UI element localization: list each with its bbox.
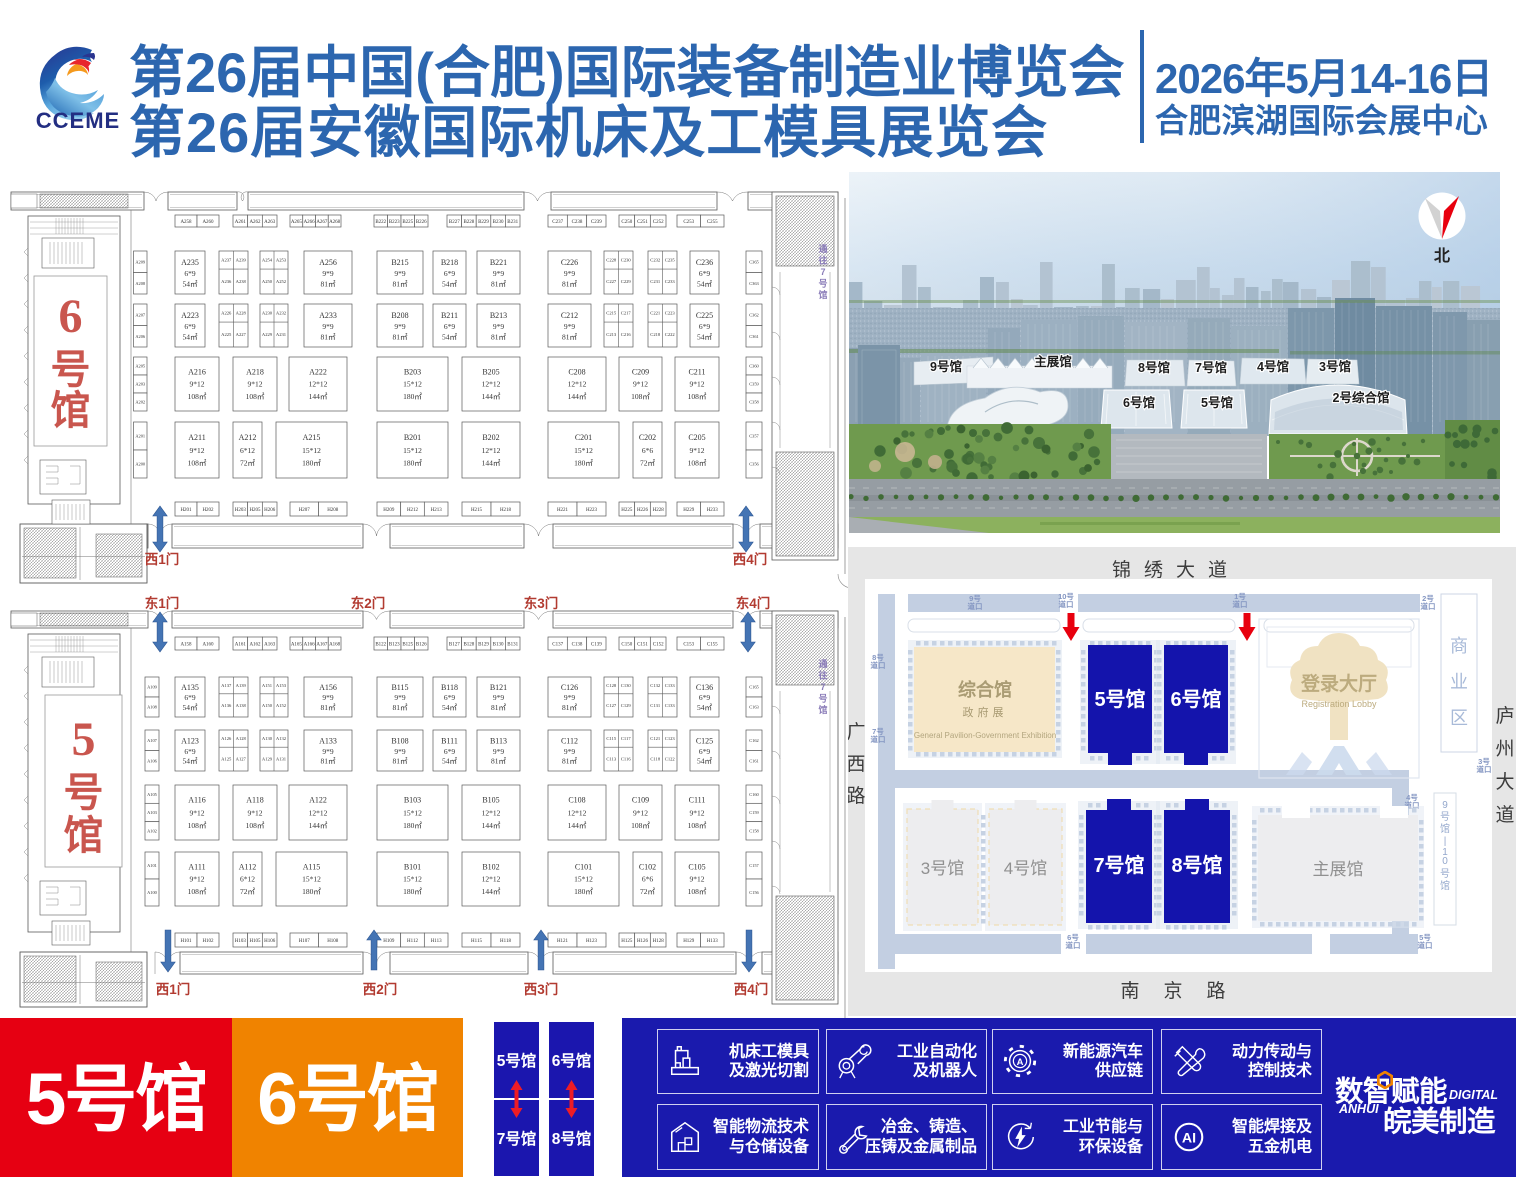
svg-text:B121: B121 xyxy=(490,683,507,692)
svg-text:C115: C115 xyxy=(606,736,616,741)
svg-text:144㎡: 144㎡ xyxy=(482,459,501,468)
svg-text:2号综合馆: 2号综合馆 xyxy=(1333,390,1390,405)
svg-text:B215: B215 xyxy=(391,258,408,267)
svg-text:北: 北 xyxy=(1434,247,1450,265)
svg-text:A209: A209 xyxy=(135,259,146,264)
svg-text:180㎡: 180㎡ xyxy=(403,459,422,468)
svg-text:H129: H129 xyxy=(683,939,695,944)
svg-text:登录大厅: 登录大厅 xyxy=(1300,672,1377,695)
svg-text:西: 西 xyxy=(848,754,866,775)
svg-text:A111: A111 xyxy=(188,862,205,871)
svg-text:馆: 馆 xyxy=(64,813,104,858)
svg-text:81㎡: 81㎡ xyxy=(491,332,507,341)
svg-text:C250: C250 xyxy=(621,220,632,225)
svg-text:5号馆: 5号馆 xyxy=(1201,395,1233,410)
svg-text:H113: H113 xyxy=(431,939,442,944)
svg-text:C236: C236 xyxy=(696,258,713,267)
svg-text:东1门: 东1门 xyxy=(145,595,180,611)
svg-text:9: 9 xyxy=(1442,800,1448,811)
svg-text:81㎡: 81㎡ xyxy=(491,703,507,712)
svg-text:B221: B221 xyxy=(490,258,507,267)
svg-text:9*12: 9*12 xyxy=(248,380,263,389)
svg-text:H118: H118 xyxy=(500,939,511,944)
svg-text:H221: H221 xyxy=(557,508,569,513)
svg-text:B115: B115 xyxy=(391,683,408,692)
svg-text:A202: A202 xyxy=(135,400,145,405)
svg-text:H218: H218 xyxy=(500,508,512,513)
svg-text:C108: C108 xyxy=(568,796,585,805)
svg-text:H112: H112 xyxy=(407,939,418,944)
svg-text:馆: 馆 xyxy=(818,289,827,300)
svg-text:B101: B101 xyxy=(404,862,421,871)
svg-text:180㎡: 180㎡ xyxy=(403,392,422,401)
svg-text:5号馆: 5号馆 xyxy=(1094,687,1145,711)
svg-text:B211: B211 xyxy=(441,311,458,320)
svg-text:C251: C251 xyxy=(637,220,648,225)
svg-text:A250: A250 xyxy=(262,279,273,284)
svg-text:108㎡: 108㎡ xyxy=(188,459,207,468)
svg-text:B222: B222 xyxy=(375,220,386,225)
svg-text:15*12: 15*12 xyxy=(403,446,422,455)
svg-text:6*9: 6*9 xyxy=(699,747,711,756)
svg-text:A266: A266 xyxy=(304,220,316,225)
svg-text:A268: A268 xyxy=(329,220,341,225)
svg-text:9*12: 9*12 xyxy=(633,380,648,389)
svg-text:A167: A167 xyxy=(316,642,328,647)
svg-text:A260: A260 xyxy=(202,220,214,225)
svg-text:B102: B102 xyxy=(482,862,499,871)
svg-text:A100: A100 xyxy=(147,890,158,895)
svg-text:道口: 道口 xyxy=(1477,764,1492,774)
svg-text:A237: A237 xyxy=(221,258,232,263)
svg-text:区: 区 xyxy=(1450,708,1468,728)
svg-text:A108: A108 xyxy=(147,705,158,710)
svg-text:144㎡: 144㎡ xyxy=(482,392,501,401)
svg-text:广: 广 xyxy=(848,721,866,743)
svg-text:81㎡: 81㎡ xyxy=(393,703,409,712)
svg-text:6*9: 6*9 xyxy=(184,747,196,756)
svg-text:54㎡: 54㎡ xyxy=(697,279,713,288)
svg-text:12*12: 12*12 xyxy=(482,808,501,817)
svg-text:180㎡: 180㎡ xyxy=(302,459,321,468)
svg-text:72㎡: 72㎡ xyxy=(640,459,656,468)
svg-text:C227: C227 xyxy=(606,279,617,284)
svg-text:B126: B126 xyxy=(416,642,427,647)
svg-text:C202: C202 xyxy=(639,433,656,442)
svg-text:C225: C225 xyxy=(696,311,713,320)
svg-text:6*9: 6*9 xyxy=(184,693,196,702)
svg-text:180㎡: 180㎡ xyxy=(574,459,593,468)
svg-text:A267: A267 xyxy=(316,220,328,225)
svg-text:C152: C152 xyxy=(653,642,664,647)
svg-text:B225: B225 xyxy=(402,220,413,225)
svg-text:A227: A227 xyxy=(236,332,247,337)
svg-text:108㎡: 108㎡ xyxy=(688,392,707,401)
svg-text:B227: B227 xyxy=(449,220,460,225)
svg-text:B131: B131 xyxy=(507,642,518,647)
svg-text:C113: C113 xyxy=(606,757,616,762)
svg-text:H123: H123 xyxy=(586,939,598,944)
svg-text:A: A xyxy=(1017,1057,1024,1068)
svg-text:H205: H205 xyxy=(249,508,261,513)
svg-text:A133: A133 xyxy=(319,737,337,746)
svg-text:A254: A254 xyxy=(262,258,273,263)
svg-text:C239: C239 xyxy=(591,220,602,225)
svg-text:H213: H213 xyxy=(431,508,443,513)
svg-text:A132: A132 xyxy=(276,736,287,741)
svg-text:A103: A103 xyxy=(147,810,158,815)
svg-text:南京路: 南京路 xyxy=(1120,980,1249,1002)
svg-text:A158: A158 xyxy=(180,642,192,647)
svg-text:81㎡: 81㎡ xyxy=(562,703,578,712)
svg-text:西1门: 西1门 xyxy=(156,981,191,997)
svg-text:B229: B229 xyxy=(478,220,489,225)
svg-text:C235: C235 xyxy=(665,258,676,263)
svg-text:81㎡: 81㎡ xyxy=(393,279,409,288)
svg-text:A135: A135 xyxy=(181,683,199,692)
svg-text:A215: A215 xyxy=(303,433,321,442)
svg-text:C205: C205 xyxy=(688,433,705,442)
svg-text:H212: H212 xyxy=(407,508,419,513)
svg-text:9*12: 9*12 xyxy=(190,380,205,389)
svg-text:A253: A253 xyxy=(276,258,287,263)
svg-text:9*9: 9*9 xyxy=(322,269,334,278)
svg-text:81㎡: 81㎡ xyxy=(321,332,337,341)
svg-text:9*9: 9*9 xyxy=(322,322,334,331)
svg-text:道口: 道口 xyxy=(968,601,983,611)
svg-text:81㎡: 81㎡ xyxy=(393,332,409,341)
svg-text:9*9: 9*9 xyxy=(394,747,406,756)
svg-text:路: 路 xyxy=(848,785,866,807)
svg-text:B213: B213 xyxy=(490,311,507,320)
svg-text:54㎡: 54㎡ xyxy=(697,332,713,341)
svg-text:C217: C217 xyxy=(621,311,632,316)
svg-text:C137: C137 xyxy=(552,642,563,647)
svg-text:81㎡: 81㎡ xyxy=(562,757,578,766)
svg-text:通: 通 xyxy=(818,658,827,669)
svg-text:9*12: 9*12 xyxy=(190,875,205,884)
svg-text:C358: C358 xyxy=(749,400,759,405)
svg-text:号: 号 xyxy=(51,347,91,392)
svg-text:号: 号 xyxy=(818,279,827,289)
svg-text:AI: AI xyxy=(1182,1131,1196,1147)
svg-text:6*9: 6*9 xyxy=(444,747,456,756)
svg-text:B130: B130 xyxy=(493,642,504,647)
svg-text:C230: C230 xyxy=(621,258,632,263)
svg-text:144㎡: 144㎡ xyxy=(309,392,328,401)
svg-text:C221: C221 xyxy=(650,311,661,316)
svg-text:B230: B230 xyxy=(493,220,504,225)
svg-text:A160: A160 xyxy=(202,642,214,647)
svg-text:A206: A206 xyxy=(135,334,146,339)
svg-text:A236: A236 xyxy=(221,279,232,284)
svg-text:号: 号 xyxy=(1440,811,1450,823)
svg-text:12*12: 12*12 xyxy=(309,380,328,389)
svg-text:144㎡: 144㎡ xyxy=(482,821,501,830)
svg-text:9*12: 9*12 xyxy=(690,808,705,817)
svg-text:西2门: 西2门 xyxy=(363,981,398,997)
svg-text:6*9: 6*9 xyxy=(699,693,711,702)
svg-text:C232: C232 xyxy=(650,258,661,263)
svg-text:A109: A109 xyxy=(147,685,158,690)
svg-text:C158: C158 xyxy=(749,829,759,834)
svg-text:C361: C361 xyxy=(749,334,759,339)
svg-text:业: 业 xyxy=(1450,672,1468,692)
svg-text:H101: H101 xyxy=(180,939,192,944)
svg-text:B127: B127 xyxy=(449,642,460,647)
svg-text:A112: A112 xyxy=(239,862,256,871)
svg-text:州: 州 xyxy=(1495,739,1514,760)
svg-text:12*12: 12*12 xyxy=(568,808,587,817)
svg-text:B208: B208 xyxy=(391,311,408,320)
svg-text:A125: A125 xyxy=(221,757,232,762)
svg-text:C112: C112 xyxy=(561,737,578,746)
svg-text:A156: A156 xyxy=(319,683,337,692)
svg-text:道: 道 xyxy=(1495,804,1514,826)
svg-text:H203: H203 xyxy=(235,508,247,513)
svg-text:C218: C218 xyxy=(650,332,661,337)
svg-text:H115: H115 xyxy=(471,939,482,944)
svg-text:B103: B103 xyxy=(404,796,421,805)
svg-text:C359: C359 xyxy=(749,382,759,387)
svg-text:108㎡: 108㎡ xyxy=(246,821,265,830)
svg-text:7号馆: 7号馆 xyxy=(1195,360,1227,375)
svg-text:B125: B125 xyxy=(402,642,413,647)
svg-text:5: 5 xyxy=(72,713,96,766)
svg-text:108㎡: 108㎡ xyxy=(188,392,207,401)
svg-text:H107: H107 xyxy=(299,939,311,944)
svg-text:C126: C126 xyxy=(561,683,578,692)
svg-text:A207: A207 xyxy=(135,312,146,317)
svg-text:12*12: 12*12 xyxy=(309,808,328,817)
svg-text:6*9: 6*9 xyxy=(444,322,456,331)
svg-text:A168: A168 xyxy=(329,642,341,647)
svg-text:H233: H233 xyxy=(707,508,719,513)
svg-text:A238: A238 xyxy=(236,279,247,284)
svg-text:54㎡: 54㎡ xyxy=(183,279,199,288)
svg-text:B111: B111 xyxy=(441,737,458,746)
svg-text:9*12: 9*12 xyxy=(248,808,263,817)
svg-text:15*12: 15*12 xyxy=(302,446,321,455)
svg-text:6号馆: 6号馆 xyxy=(1170,687,1221,711)
svg-text:180㎡: 180㎡ xyxy=(403,887,422,896)
svg-text:道口: 道口 xyxy=(1233,599,1248,609)
svg-text:H206: H206 xyxy=(264,508,276,513)
svg-text:6*6: 6*6 xyxy=(642,875,654,884)
svg-text:东4门: 东4门 xyxy=(736,595,771,611)
svg-text:C151: C151 xyxy=(637,642,648,647)
svg-text:A165: A165 xyxy=(291,642,303,647)
svg-text:A201: A201 xyxy=(135,434,145,439)
svg-text:6*12: 6*12 xyxy=(240,875,255,884)
svg-text:6*9: 6*9 xyxy=(699,269,711,278)
svg-text:6*9: 6*9 xyxy=(184,269,196,278)
svg-text:A216: A216 xyxy=(188,367,206,376)
svg-text:8号馆: 8号馆 xyxy=(1171,853,1222,877)
svg-text:9*9: 9*9 xyxy=(322,693,334,702)
svg-text:馆: 馆 xyxy=(1440,879,1450,892)
svg-text:A163: A163 xyxy=(264,642,276,647)
svg-text:9*9: 9*9 xyxy=(564,693,576,702)
svg-text:54㎡: 54㎡ xyxy=(183,332,199,341)
svg-text:108㎡: 108㎡ xyxy=(188,821,207,830)
svg-text:H108: H108 xyxy=(327,939,339,944)
svg-text:108㎡: 108㎡ xyxy=(631,821,650,830)
svg-text:15*12: 15*12 xyxy=(403,875,422,884)
svg-text:C223: C223 xyxy=(665,311,676,316)
svg-text:A116: A116 xyxy=(188,796,205,805)
svg-text:A235: A235 xyxy=(181,258,199,267)
svg-text:12*12: 12*12 xyxy=(482,380,501,389)
svg-text:馆: 馆 xyxy=(1440,822,1450,835)
svg-text:B129: B129 xyxy=(478,642,489,647)
svg-text:15*12: 15*12 xyxy=(574,875,593,884)
svg-text:108㎡: 108㎡ xyxy=(246,392,265,401)
svg-text:180㎡: 180㎡ xyxy=(302,887,321,896)
svg-text:C215: C215 xyxy=(606,311,617,316)
svg-text:108㎡: 108㎡ xyxy=(688,887,707,896)
svg-text:A228: A228 xyxy=(236,311,247,316)
svg-text:C238: C238 xyxy=(572,220,583,225)
svg-text:A258: A258 xyxy=(180,220,192,225)
svg-text:A102: A102 xyxy=(147,829,157,834)
svg-text:A136: A136 xyxy=(221,703,232,708)
svg-text:道口: 道口 xyxy=(1059,599,1074,609)
svg-text:A263: A263 xyxy=(264,220,276,225)
svg-text:C128: C128 xyxy=(606,683,617,688)
svg-text:C153: C153 xyxy=(683,642,694,647)
svg-text:108㎡: 108㎡ xyxy=(688,821,707,830)
svg-text:C233: C233 xyxy=(665,279,676,284)
svg-text:B122: B122 xyxy=(375,642,386,647)
svg-text:6*9: 6*9 xyxy=(444,693,456,702)
svg-text:54㎡: 54㎡ xyxy=(442,332,458,341)
svg-text:号: 号 xyxy=(1440,868,1450,880)
svg-text:144㎡: 144㎡ xyxy=(568,821,587,830)
svg-text:3号馆: 3号馆 xyxy=(921,859,964,878)
svg-text:Registration Lobby: Registration Lobby xyxy=(1301,699,1377,709)
svg-text:12*12: 12*12 xyxy=(482,446,501,455)
svg-text:综合馆: 综合馆 xyxy=(958,679,1012,700)
svg-text:H209: H209 xyxy=(383,508,395,513)
svg-text:108㎡: 108㎡ xyxy=(631,392,650,401)
svg-text:A128: A128 xyxy=(236,736,247,741)
svg-text:9*12: 9*12 xyxy=(690,875,705,884)
svg-text:9*9: 9*9 xyxy=(394,322,406,331)
svg-text:A131: A131 xyxy=(276,757,287,762)
svg-text:144㎡: 144㎡ xyxy=(482,887,501,896)
svg-text:6*9: 6*9 xyxy=(184,322,196,331)
svg-text:西1门: 西1门 xyxy=(145,551,180,567)
svg-text:C362: C362 xyxy=(749,312,759,317)
svg-text:道口: 道口 xyxy=(1066,940,1081,950)
svg-text:号: 号 xyxy=(64,770,104,815)
svg-text:往: 往 xyxy=(818,255,827,266)
svg-text:东3门: 东3门 xyxy=(524,595,559,611)
svg-text:大: 大 xyxy=(1495,771,1514,793)
svg-text:C211: C211 xyxy=(688,367,705,376)
svg-text:7: 7 xyxy=(820,682,825,692)
svg-text:C109: C109 xyxy=(632,796,649,805)
svg-text:C125: C125 xyxy=(696,737,713,746)
svg-text:B128: B128 xyxy=(463,642,474,647)
svg-text:A130: A130 xyxy=(262,736,273,741)
svg-text:9*9: 9*9 xyxy=(493,693,505,702)
svg-text:|: | xyxy=(1444,836,1447,847)
svg-text:54㎡: 54㎡ xyxy=(442,703,458,712)
svg-text:号: 号 xyxy=(818,694,827,704)
svg-text:A127: A127 xyxy=(236,757,247,762)
svg-text:A265: A265 xyxy=(291,220,303,225)
svg-text:72㎡: 72㎡ xyxy=(240,459,256,468)
svg-text:C165: C165 xyxy=(749,685,759,690)
svg-text:A166: A166 xyxy=(304,642,316,647)
svg-text:B123: B123 xyxy=(389,642,400,647)
svg-text:9*12: 9*12 xyxy=(633,808,648,817)
svg-text:C111: C111 xyxy=(689,796,706,805)
svg-text:H102: H102 xyxy=(202,939,214,944)
svg-text:9*9: 9*9 xyxy=(394,269,406,278)
svg-text:81㎡: 81㎡ xyxy=(491,757,507,766)
svg-text:54㎡: 54㎡ xyxy=(183,757,199,766)
svg-text:C201: C201 xyxy=(575,433,592,442)
svg-text:A150: A150 xyxy=(262,703,273,708)
svg-text:A223: A223 xyxy=(181,311,199,320)
svg-text:6号馆: 6号馆 xyxy=(1123,395,1155,410)
svg-text:B205: B205 xyxy=(482,367,499,376)
svg-text:General Pavilion-Government Ex: General Pavilion-Government Exhibition xyxy=(914,731,1056,740)
svg-text:A138: A138 xyxy=(236,703,247,708)
svg-text:A222: A222 xyxy=(309,367,327,376)
svg-text:A231: A231 xyxy=(276,332,287,337)
svg-text:H103: H103 xyxy=(235,939,247,944)
svg-text:9*9: 9*9 xyxy=(322,747,334,756)
svg-text:C237: C237 xyxy=(552,220,563,225)
svg-text:C253: C253 xyxy=(683,220,694,225)
svg-text:H208: H208 xyxy=(327,508,339,513)
svg-text:C155: C155 xyxy=(707,642,718,647)
svg-text:C212: C212 xyxy=(561,311,578,320)
svg-text:7: 7 xyxy=(820,267,825,277)
svg-text:A129: A129 xyxy=(262,757,273,762)
svg-text:C216: C216 xyxy=(621,332,632,337)
svg-text:C252: C252 xyxy=(653,220,664,225)
svg-text:A115: A115 xyxy=(303,862,320,871)
svg-text:馆: 馆 xyxy=(818,704,827,715)
svg-text:道口: 道口 xyxy=(1418,940,1433,950)
svg-text:馆: 馆 xyxy=(51,388,91,433)
svg-text:C121: C121 xyxy=(650,736,661,741)
svg-text:C156: C156 xyxy=(749,890,759,895)
svg-text:54㎡: 54㎡ xyxy=(697,757,713,766)
svg-text:H125: H125 xyxy=(621,939,633,944)
svg-text:C129: C129 xyxy=(621,703,632,708)
svg-text:C133: C133 xyxy=(665,683,676,688)
svg-text:A118: A118 xyxy=(246,796,263,805)
svg-text:9*9: 9*9 xyxy=(493,322,505,331)
svg-text:A205: A205 xyxy=(135,364,146,369)
svg-text:A239: A239 xyxy=(236,258,247,263)
svg-text:81㎡: 81㎡ xyxy=(562,332,578,341)
svg-text:B218: B218 xyxy=(441,258,458,267)
svg-text:庐: 庐 xyxy=(1495,705,1514,727)
svg-text:A218: A218 xyxy=(246,367,264,376)
svg-text:东2门: 东2门 xyxy=(351,595,386,611)
svg-text:H202: H202 xyxy=(202,508,214,513)
svg-text:C255: C255 xyxy=(707,220,718,225)
svg-text:C131: C131 xyxy=(650,703,661,708)
svg-text:81㎡: 81㎡ xyxy=(562,279,578,288)
